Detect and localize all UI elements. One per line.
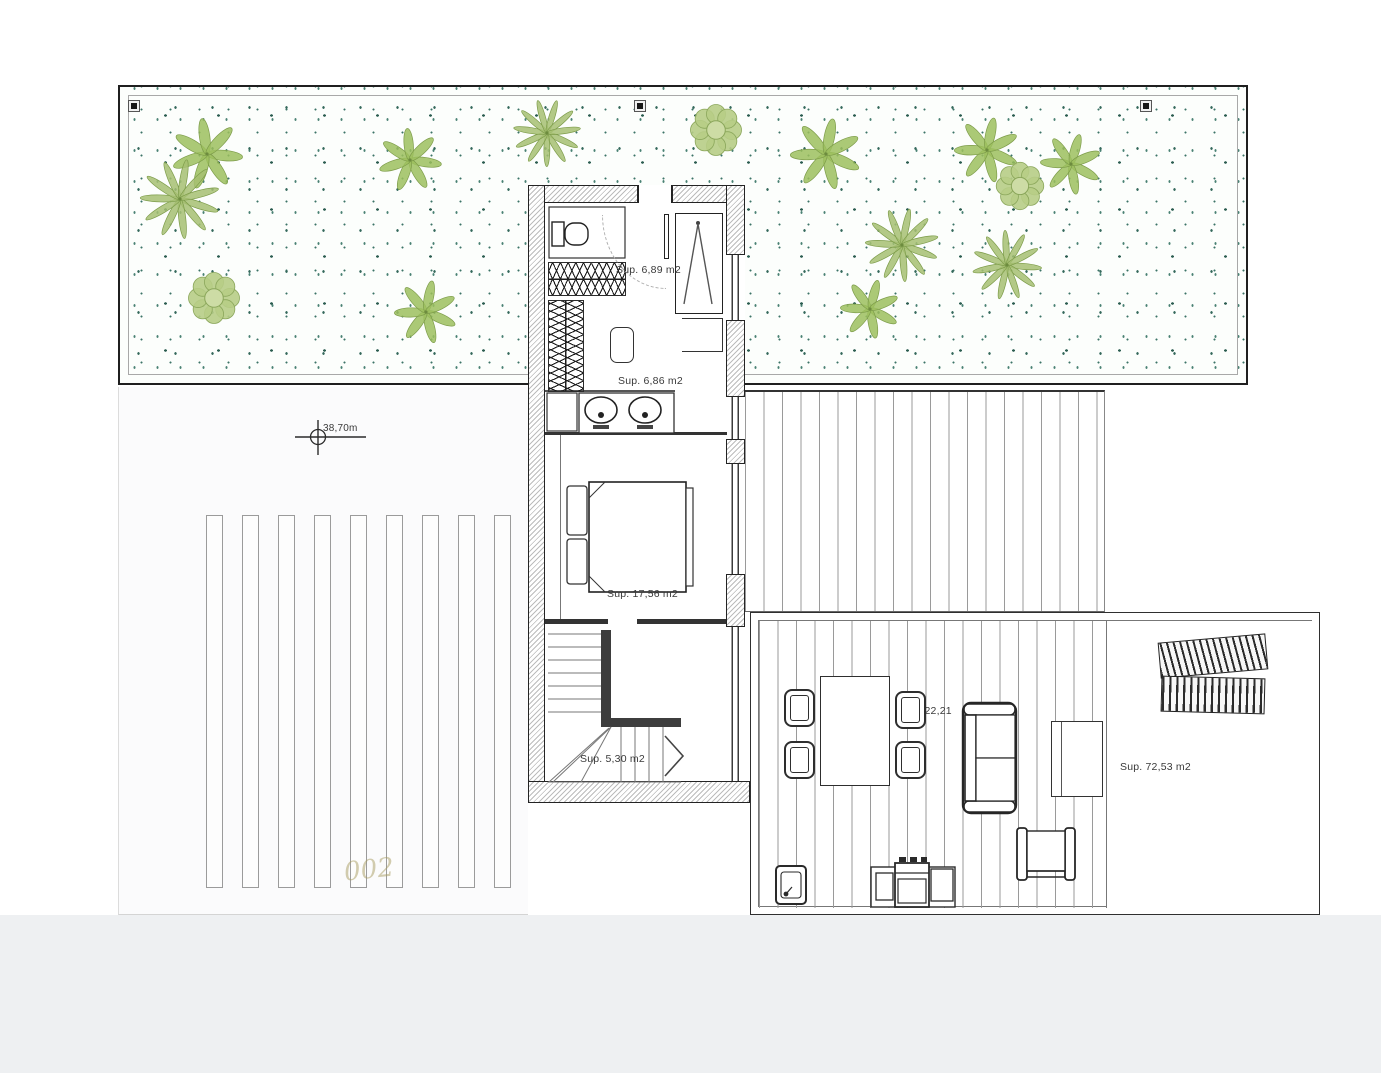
- technical-room: [675, 213, 723, 314]
- deck-plank: [494, 515, 511, 888]
- dining-chair: [784, 689, 815, 727]
- wardrobe-hangers: [548, 300, 584, 392]
- deck-plank: [422, 515, 439, 888]
- bush-plant-icon: [185, 269, 243, 327]
- sliding-door: [726, 627, 745, 781]
- bedroom-inner-line: [560, 435, 561, 620]
- deck-plank: [386, 515, 403, 888]
- entrance-opening: [638, 185, 672, 203]
- coffee-table: [1051, 721, 1103, 797]
- wall-right-seg: [726, 320, 745, 397]
- wall-right-seg: [726, 439, 745, 464]
- wall-right-seg: [726, 185, 745, 255]
- door-leaf: [664, 214, 669, 259]
- terrace: Sup. 22,21 Sup. 72,53 m2: [750, 612, 1320, 915]
- deck-plank: [242, 515, 259, 888]
- wall-left: [528, 185, 545, 803]
- bush-plant-icon: [993, 159, 1047, 213]
- fern-plant-icon: [514, 100, 580, 166]
- bath-area-label: Sup. 6,86 m2: [618, 375, 683, 387]
- palm-plant-icon: [1041, 134, 1101, 194]
- fern-plant-icon: [866, 209, 938, 281]
- palm-plant-icon: [791, 119, 861, 189]
- armchair: [1015, 825, 1077, 883]
- wc-bidet: [610, 327, 634, 363]
- level-marker-label: 38,70m: [323, 423, 358, 434]
- watermark: 002: [343, 852, 396, 887]
- fern-plant-icon: [141, 160, 219, 238]
- ladder-icon: [676, 214, 720, 311]
- dining-chair: [895, 691, 926, 729]
- deck-plank: [278, 515, 295, 888]
- technical-box: [682, 318, 723, 352]
- bush-plant-icon: [687, 101, 745, 159]
- dining-table: [820, 676, 890, 786]
- palm-plant-icon: [379, 129, 441, 191]
- hall-area-label: Sup. 6,89 m2: [616, 264, 681, 276]
- wardrobe-hangers: [548, 262, 626, 296]
- stairs-area-label: Sup. 5,30 m2: [580, 753, 645, 765]
- double-bed: [562, 478, 694, 596]
- window: [726, 464, 745, 574]
- dining-chair: [895, 741, 926, 779]
- level-marker-icon: [288, 414, 373, 462]
- plank-deck: [119, 387, 528, 914]
- bedroom-area-label: Sup. 17,56 m2: [607, 588, 678, 600]
- bbq-grill: [869, 855, 957, 911]
- page-bottom-band: [0, 915, 1381, 1073]
- outdoor-sink: [775, 865, 807, 905]
- window: [726, 255, 745, 320]
- palm-plant-icon: [841, 280, 899, 338]
- double-vanity: [546, 390, 676, 436]
- fern-plant-icon: [973, 231, 1041, 299]
- deck-plank: [350, 515, 367, 888]
- sofa: [961, 701, 1019, 816]
- deck-plank: [314, 515, 331, 888]
- window: [726, 397, 745, 439]
- dining-chair: [784, 741, 815, 779]
- palm-plant-icon: [395, 281, 457, 343]
- left-yard: 002: [118, 387, 528, 915]
- deck-plank: [206, 515, 223, 888]
- floor-plan-canvas: 002 38,70m Sup. 22,21: [0, 0, 1381, 1073]
- terrace-area-label: Sup. 72,53 m2: [1120, 761, 1191, 773]
- wall-right-seg: [726, 574, 745, 627]
- deck-plank: [458, 515, 475, 888]
- upper-deck: [745, 390, 1105, 612]
- sun-lounger: [1161, 676, 1266, 715]
